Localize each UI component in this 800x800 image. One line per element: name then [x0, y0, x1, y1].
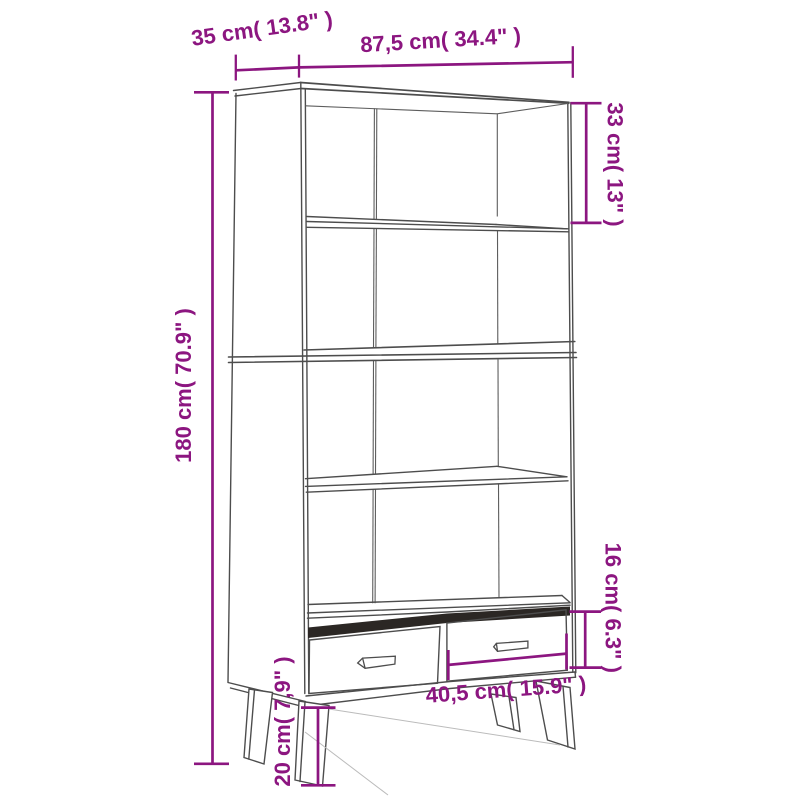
svg-text:16 cm( 6.3" ): 16 cm( 6.3" ) [601, 543, 626, 673]
svg-text:20 cm( 7,9" ): 20 cm( 7,9" ) [270, 656, 295, 786]
svg-text:180 cm( 70.9" ): 180 cm( 70.9" ) [171, 308, 196, 463]
svg-text:33 cm( 13" ): 33 cm( 13" ) [603, 102, 628, 226]
